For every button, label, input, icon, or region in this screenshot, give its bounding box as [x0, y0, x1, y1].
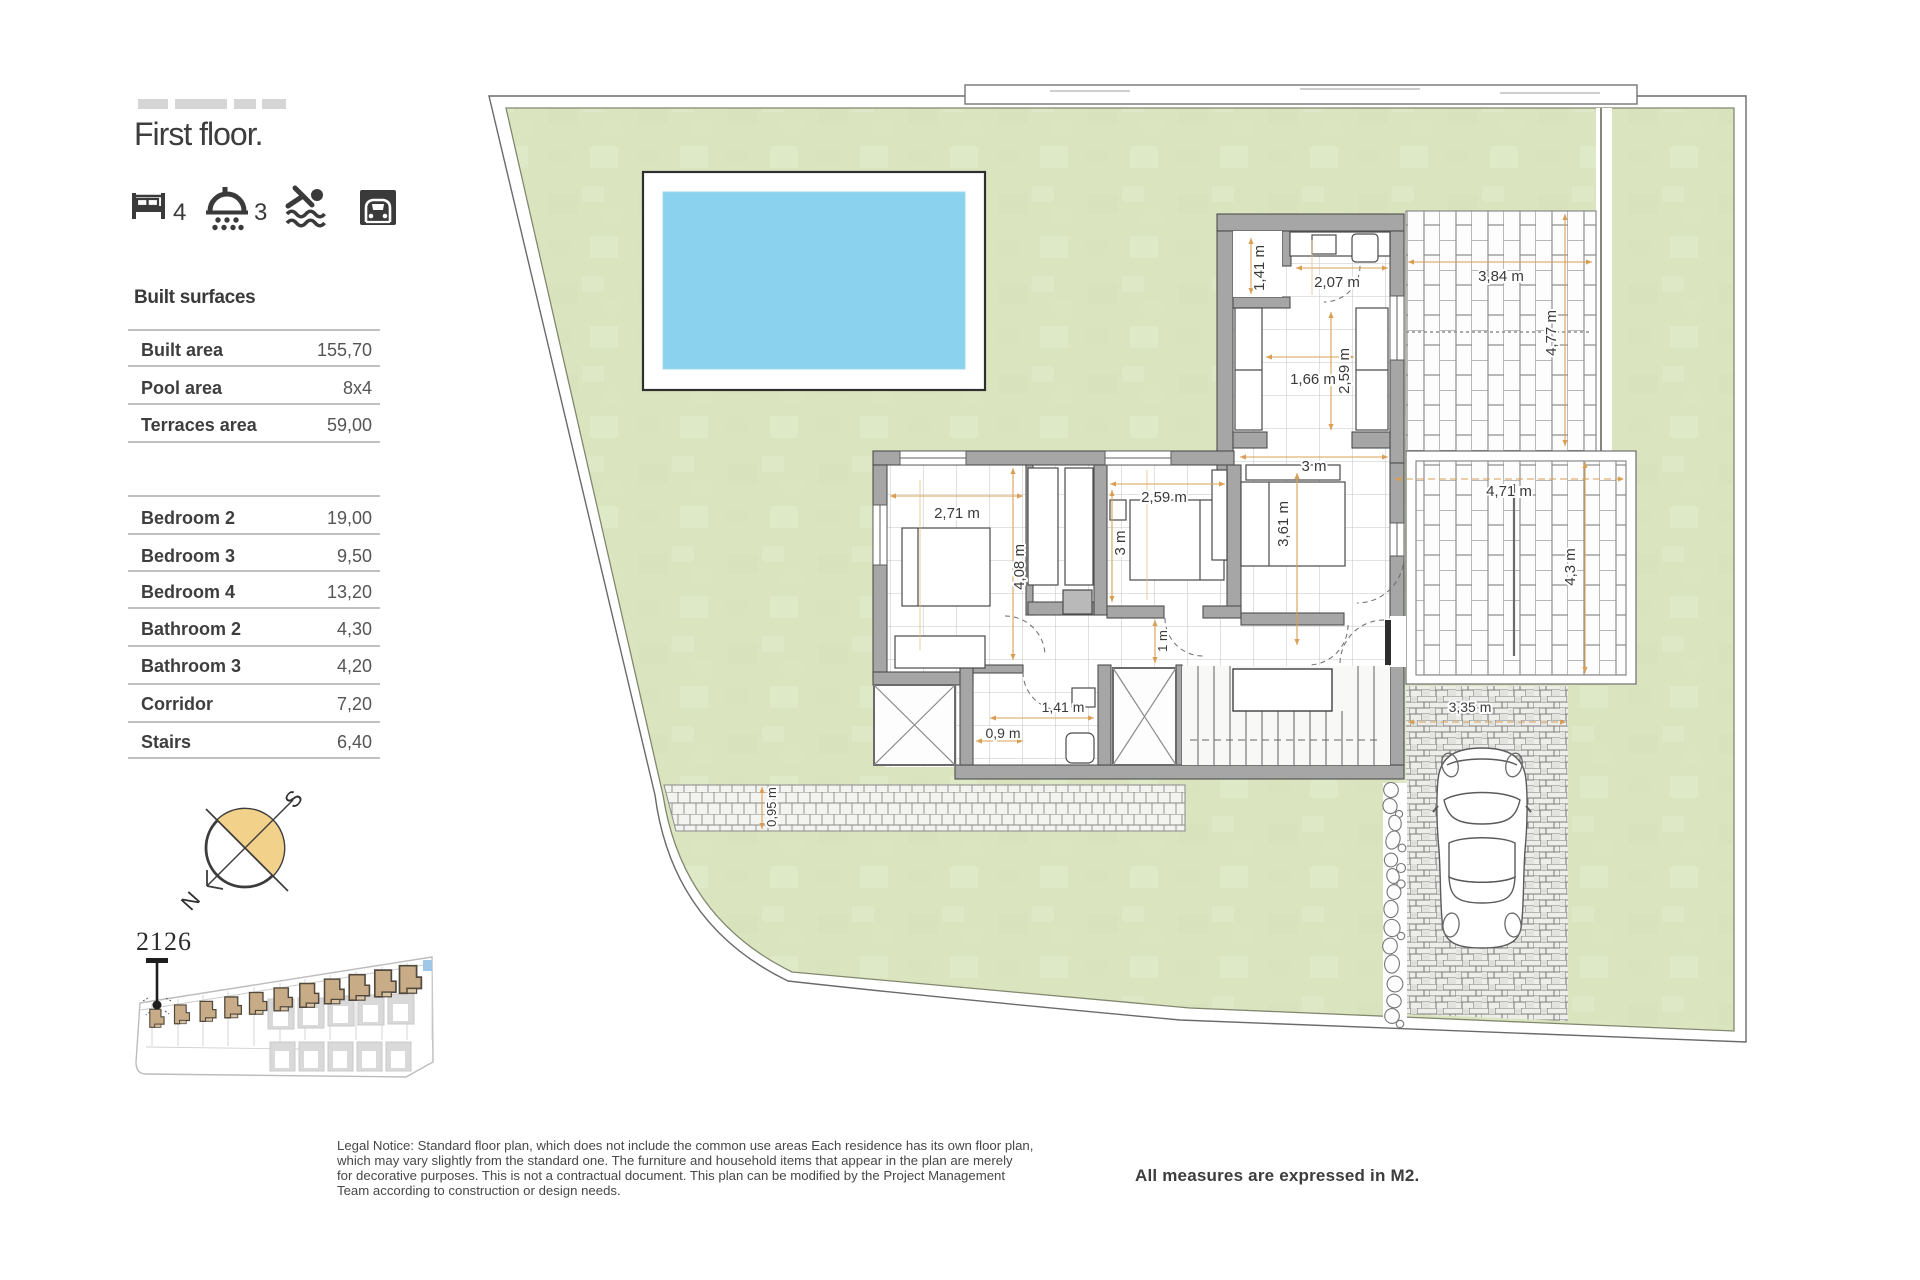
svg-text:9,50: 9,50: [337, 546, 372, 566]
svg-text:2,71 m: 2,71 m: [934, 505, 980, 522]
svg-text:59,00: 59,00: [327, 415, 372, 435]
svg-text:6,40: 6,40: [337, 732, 372, 752]
svg-text:19,00: 19,00: [327, 508, 372, 528]
svg-text:Stairs: Stairs: [141, 732, 191, 752]
svg-text:3,84 m: 3,84 m: [1478, 268, 1524, 285]
svg-text:1,66 m: 1,66 m: [1290, 371, 1336, 388]
svg-text:2126: 2126: [136, 927, 192, 956]
svg-text:2,59 m: 2,59 m: [1336, 348, 1353, 394]
svg-text:Built surfaces: Built surfaces: [134, 287, 255, 308]
svg-text:4,71 m: 4,71 m: [1486, 483, 1532, 500]
svg-text:4,20: 4,20: [337, 656, 372, 676]
svg-text:13,20: 13,20: [327, 582, 372, 602]
svg-text:2,07 m: 2,07 m: [1314, 274, 1360, 291]
svg-text:Pool area: Pool area: [141, 378, 223, 398]
svg-text:0,95 m: 0,95 m: [764, 787, 779, 827]
svg-text:4,3 m: 4,3 m: [1562, 548, 1579, 586]
svg-text:2,59 m: 2,59 m: [1141, 489, 1187, 506]
svg-text:Bathroom 2: Bathroom 2: [141, 619, 241, 639]
svg-text:3 m: 3 m: [1301, 458, 1326, 475]
svg-text:which may vary slightly from t: which may vary slightly from the standar…: [336, 1153, 1013, 1168]
svg-text:4,77 m: 4,77 m: [1543, 310, 1560, 356]
svg-text:3: 3: [254, 199, 267, 226]
svg-text:3,61 m: 3,61 m: [1275, 501, 1292, 547]
svg-text:Team according to construction: Team according to construction or design…: [337, 1183, 621, 1198]
svg-text:Corridor: Corridor: [141, 694, 213, 714]
svg-text:4,08 m: 4,08 m: [1011, 544, 1028, 590]
svg-text:Terraces area: Terraces area: [141, 415, 258, 435]
svg-text:All measures are expressed in: All measures are expressed in M2.: [1135, 1166, 1419, 1185]
svg-text:Bedroom 4: Bedroom 4: [141, 582, 235, 602]
svg-text:3,35 m: 3,35 m: [1449, 699, 1492, 715]
svg-text:4: 4: [173, 199, 186, 226]
svg-text:155,70: 155,70: [317, 340, 372, 360]
svg-text:First floor.: First floor.: [134, 116, 262, 152]
svg-text:Legal Notice: Standard floor p: Legal Notice: Standard floor plan, which…: [337, 1138, 1033, 1153]
svg-text:8x4: 8x4: [343, 378, 372, 398]
svg-text:1,41 m: 1,41 m: [1042, 699, 1085, 715]
svg-text:Bedroom 3: Bedroom 3: [141, 546, 235, 566]
svg-text:7,20: 7,20: [337, 694, 372, 714]
svg-text:Bedroom 2: Bedroom 2: [141, 508, 235, 528]
svg-text:Built area: Built area: [141, 340, 224, 360]
svg-text:1 m: 1 m: [1155, 630, 1170, 652]
svg-text:1,41 m: 1,41 m: [1251, 245, 1268, 291]
svg-text:Bathroom 3: Bathroom 3: [141, 656, 241, 676]
svg-text:for decorative purposes. This: for decorative purposes. This is not a c…: [337, 1168, 1005, 1183]
svg-text:3 m: 3 m: [1112, 530, 1129, 555]
svg-text:4,30: 4,30: [337, 619, 372, 639]
svg-text:0,9 m: 0,9 m: [985, 725, 1020, 741]
